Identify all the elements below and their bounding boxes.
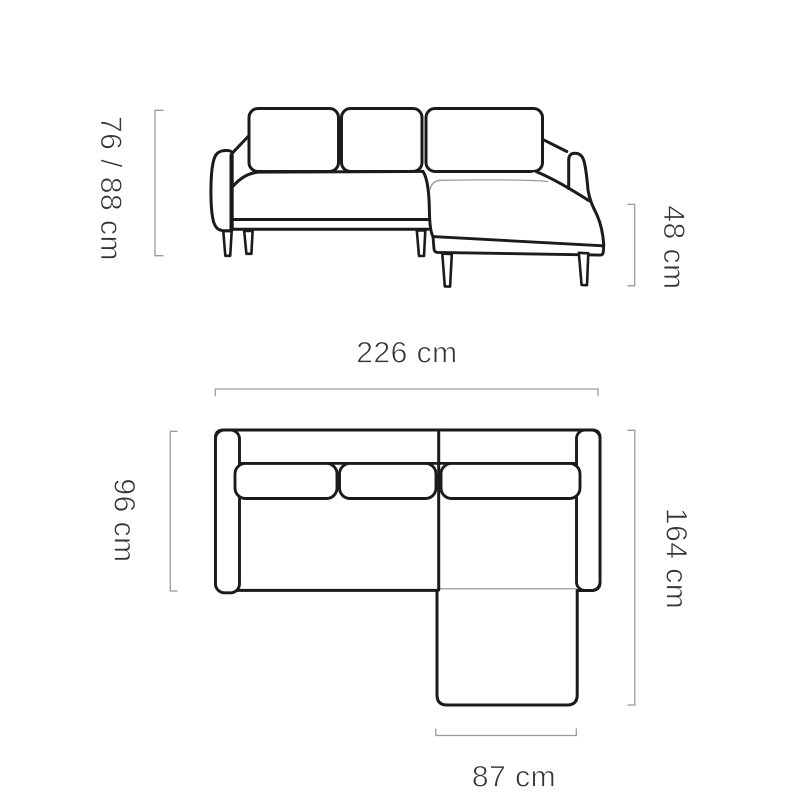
svg-text:87 cm: 87 cm: [472, 761, 556, 794]
svg-text:96 cm: 96 cm: [108, 478, 141, 562]
svg-text:48 cm: 48 cm: [657, 205, 690, 289]
svg-text:226 cm: 226 cm: [356, 337, 457, 370]
svg-text:76 / 88 cm: 76 / 88 cm: [94, 116, 127, 261]
svg-text:164 cm: 164 cm: [659, 508, 692, 609]
